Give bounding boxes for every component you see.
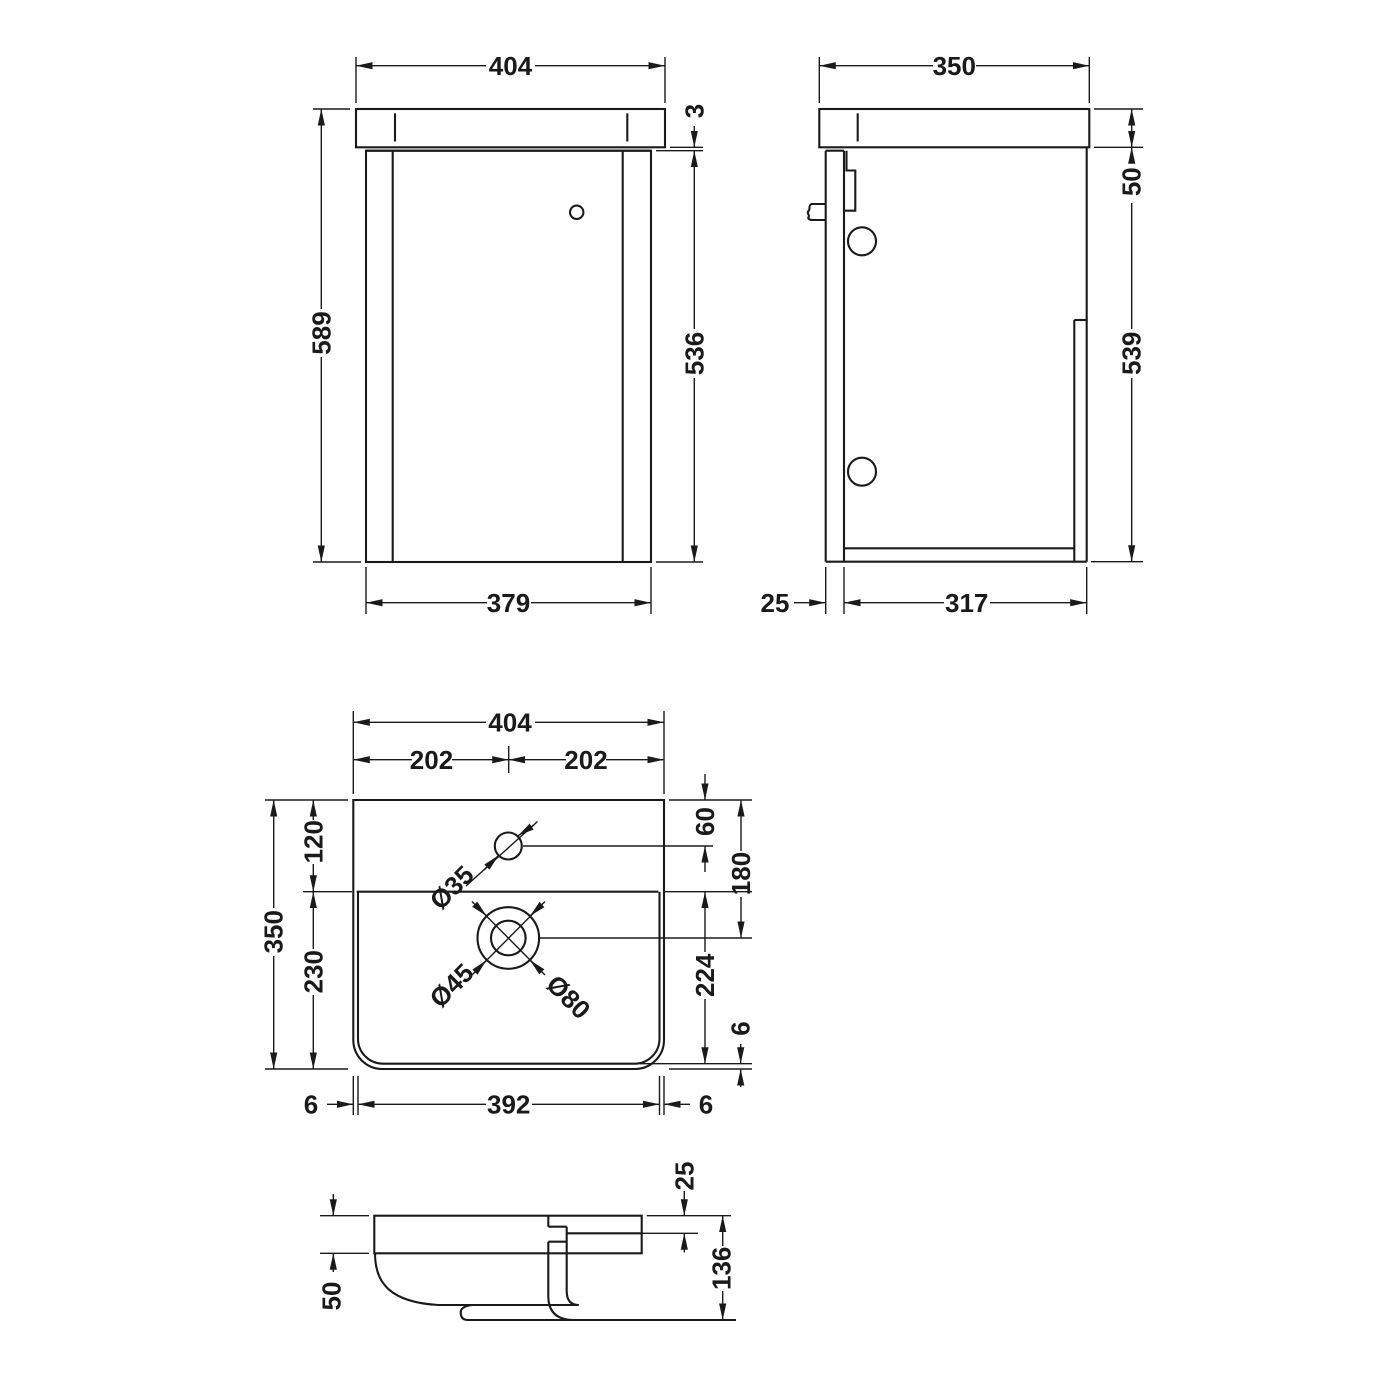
side-extension-lines — [819, 57, 1143, 614]
svg-text:136: 136 — [706, 1247, 736, 1290]
svg-text:120: 120 — [298, 820, 328, 863]
svg-text:25: 25 — [761, 588, 790, 618]
dim-plan-waste-centre: 180 — [726, 800, 756, 938]
dim-front-carcass-width: 379 — [366, 588, 651, 618]
svg-text:25: 25 — [670, 1162, 700, 1191]
dim-plan-centre-left: 202 — [353, 745, 508, 775]
plan-extension-lines — [265, 711, 752, 1115]
svg-text:202: 202 — [410, 745, 453, 775]
door-knob-profile — [808, 204, 826, 220]
section-worktop-slab — [374, 1216, 641, 1254]
svg-text:379: 379 — [487, 588, 530, 618]
dim-side-carcass-depth: 317 — [844, 588, 1087, 618]
section-extension-lines — [320, 1216, 731, 1254]
svg-text:3: 3 — [679, 104, 709, 118]
dim-side-carcass-height: 539 — [1117, 147, 1147, 561]
dim-section-bowl: 50 — [317, 1194, 347, 1310]
svg-text:202: 202 — [564, 745, 607, 775]
dim-front-overall-height: 589 — [306, 109, 336, 562]
front-elevation-view: 404 589 3 536 379 — [306, 51, 709, 618]
drawing-sheet: 404 589 3 536 379 — [0, 0, 1389, 1389]
svg-text:404: 404 — [488, 708, 532, 738]
svg-text:6: 6 — [726, 1021, 756, 1035]
basin-bowl-outline — [358, 892, 660, 1064]
svg-text:404: 404 — [489, 51, 533, 81]
dim-side-overall-depth: 350 — [819, 51, 1089, 81]
dim-plan-rim-front: 6 — [726, 1021, 756, 1087]
svg-text:Ø80: Ø80 — [541, 969, 597, 1025]
dim-section-ledge: 25 — [670, 1162, 700, 1253]
bowl-underside-profile — [375, 1253, 473, 1305]
dim-plan-overall-width: 404 — [353, 708, 664, 738]
side-door-panel — [808, 151, 876, 562]
hinge-circle-top — [848, 227, 876, 255]
svg-text:317: 317 — [945, 588, 988, 618]
dim-side-door-thickness: 25 — [761, 588, 826, 618]
dim-plan-centre-right: 202 — [509, 745, 664, 775]
side-worktop — [819, 109, 1089, 147]
dim-plan-bowl-depth: 224 — [690, 892, 720, 1064]
svg-text:350: 350 — [933, 51, 976, 81]
side-elevation-view: 350 50 539 25 317 — [761, 51, 1147, 618]
technical-drawing-canvas: 404 589 3 536 379 — [0, 0, 1389, 1389]
waste-pipe-inner — [567, 1227, 579, 1305]
hole-labels: Ø35 Ø45 Ø80 — [424, 860, 597, 1025]
dim-plan-overall-depth: 350 — [259, 800, 289, 1069]
svg-text:350: 350 — [259, 910, 289, 953]
basin-section-view: 50 25 136 — [317, 1162, 737, 1320]
hinge-plate-profile — [844, 151, 855, 211]
svg-text:6: 6 — [304, 1090, 318, 1120]
dim-plan-bowl-width: 6 392 6 — [304, 1090, 713, 1120]
door-knob-circle — [570, 206, 583, 219]
svg-text:50: 50 — [317, 1282, 347, 1311]
svg-text:392: 392 — [487, 1090, 530, 1120]
svg-text:Ø45: Ø45 — [424, 958, 480, 1014]
svg-text:536: 536 — [679, 332, 709, 375]
svg-text:Ø35: Ø35 — [424, 860, 480, 916]
svg-text:224: 224 — [690, 953, 720, 997]
front-extension-lines — [313, 57, 703, 614]
svg-text:60: 60 — [690, 807, 720, 836]
dim-section-height: 136 — [706, 1216, 736, 1320]
front-carcass — [366, 151, 651, 562]
plan-view: 404 202 202 120 230 350 — [259, 708, 756, 1120]
side-carcass — [826, 147, 1087, 561]
front-worktop — [356, 109, 665, 147]
tap-hole — [466, 822, 713, 887]
plan-outline — [353, 800, 664, 1069]
svg-text:50: 50 — [1117, 167, 1147, 196]
dim-front-overall-width: 404 — [356, 51, 665, 81]
dim-plan-back-to-bowl: 120 — [298, 800, 328, 892]
svg-text:539: 539 — [1117, 332, 1147, 375]
dim-plan-tap-centre: 60 — [690, 774, 720, 872]
svg-text:6: 6 — [699, 1090, 713, 1120]
svg-text:230: 230 — [298, 950, 328, 993]
svg-text:589: 589 — [306, 311, 336, 354]
dim-front-door-height: 536 — [679, 151, 709, 562]
dim-plan-bowl-front: 230 — [298, 892, 328, 1069]
dim-front-worktop-reveal: 3 — [679, 104, 709, 148]
hinge-circle-bottom — [848, 458, 876, 486]
waste-flange-cap — [461, 1305, 473, 1320]
svg-text:180: 180 — [726, 852, 756, 895]
